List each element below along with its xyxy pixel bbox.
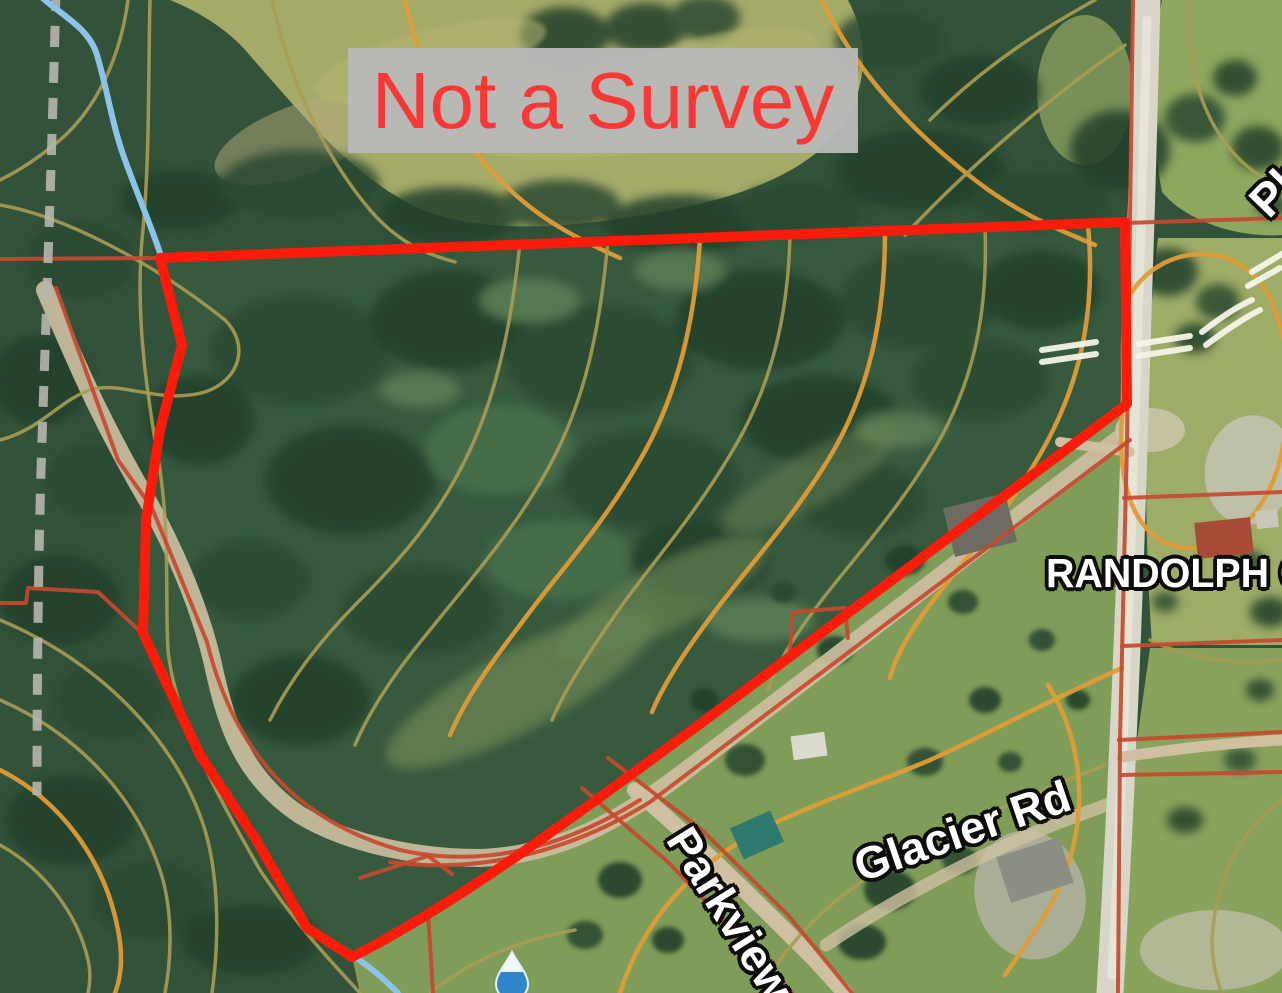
disclaimer-text: Not a Survey xyxy=(372,61,834,141)
map-canvas[interactable]: Not a Survey RANDOLPH CO Glacier Rd Park… xyxy=(0,0,1282,993)
not-a-survey-watermark: Not a Survey xyxy=(348,48,858,153)
county-label: RANDOLPH CO xyxy=(1046,550,1282,597)
water-drop-marker xyxy=(492,950,532,993)
